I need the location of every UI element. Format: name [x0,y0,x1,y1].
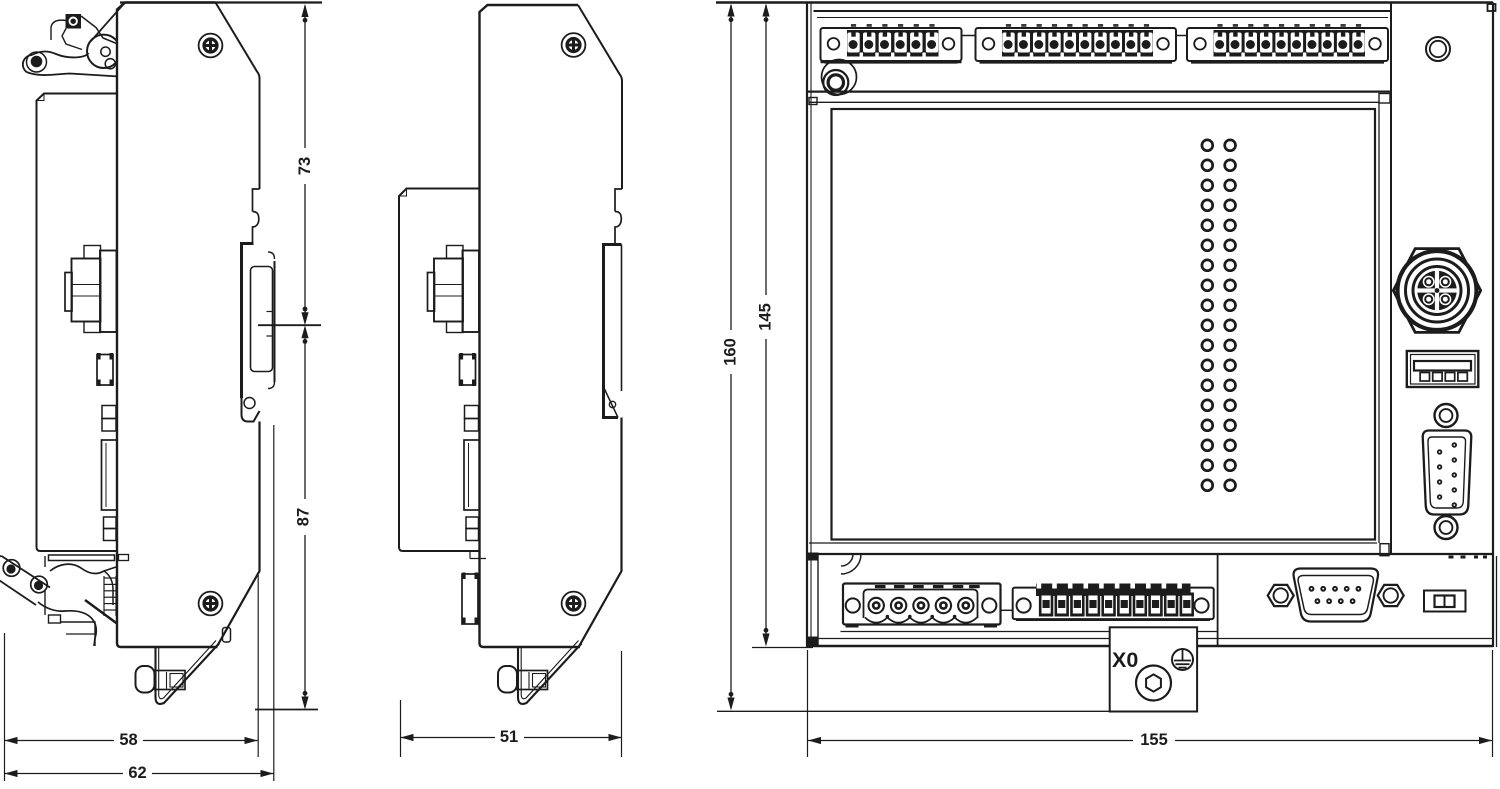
svg-text:145: 145 [757,303,775,331]
svg-text:87: 87 [295,508,313,526]
svg-text:X0: X0 [1112,648,1138,672]
svg-text:155: 155 [1140,731,1168,749]
svg-text:160: 160 [722,338,740,366]
svg-text:58: 58 [119,731,137,749]
svg-text:73: 73 [296,157,314,175]
svg-text:62: 62 [128,764,146,782]
svg-text:51: 51 [500,728,518,746]
